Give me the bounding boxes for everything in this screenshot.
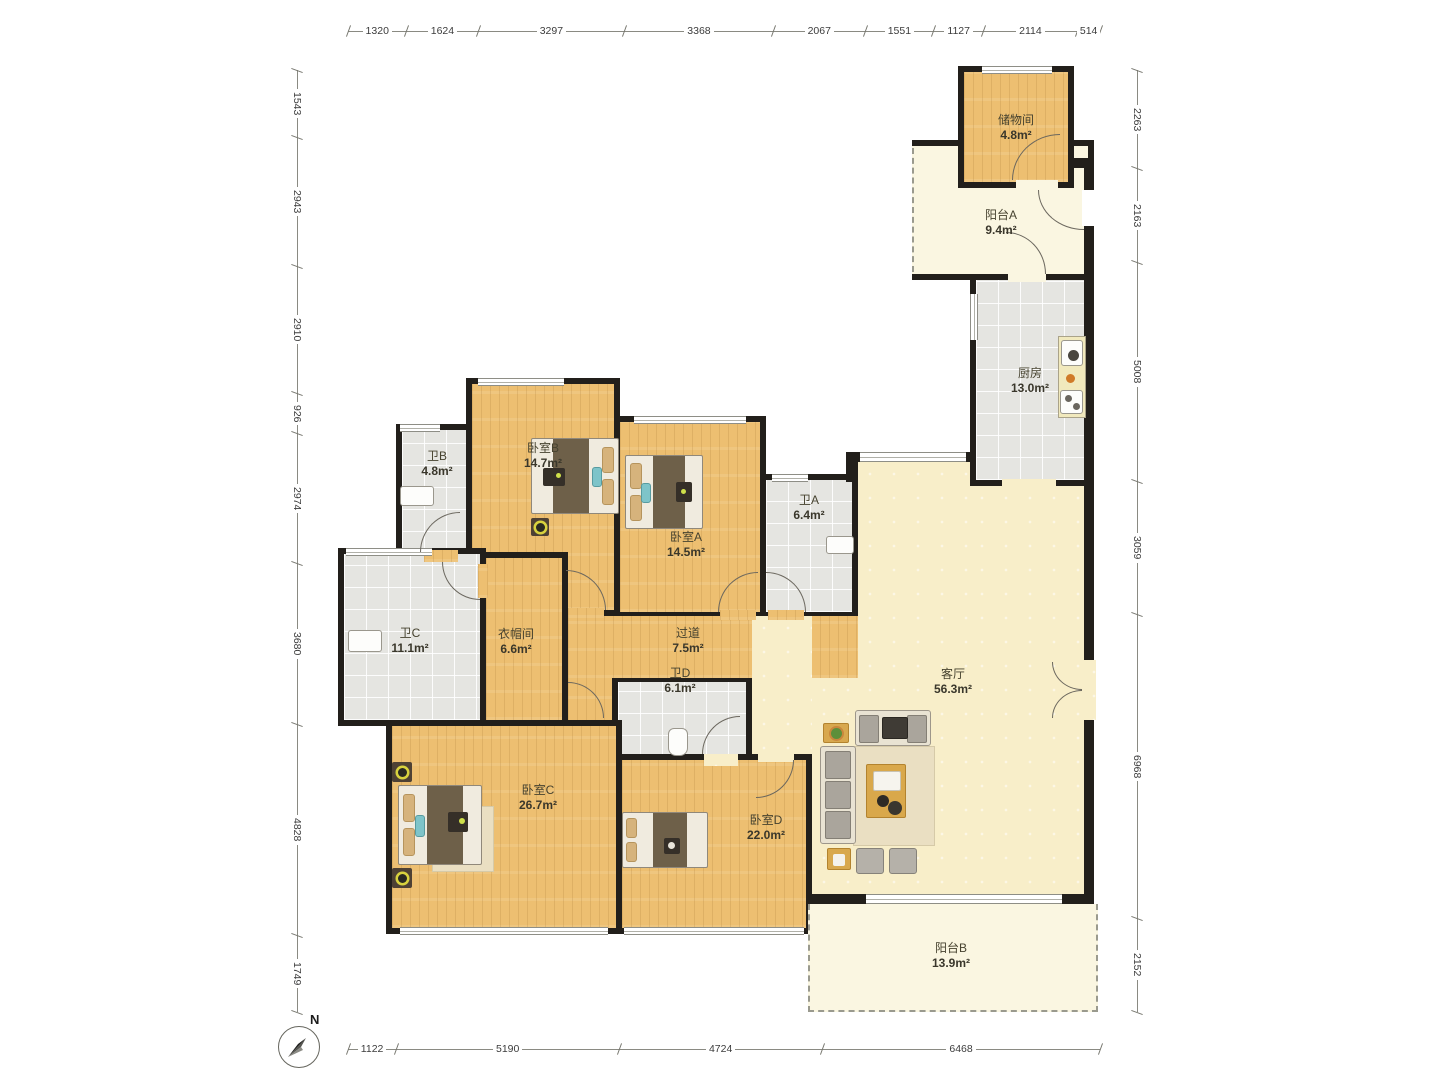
- room-name: 卫B: [421, 449, 452, 464]
- room-area: 9.4m²: [985, 223, 1017, 238]
- dimension-value: 2263: [1131, 105, 1143, 134]
- room-area: 6.4m²: [793, 508, 824, 523]
- plant-icon: [831, 728, 842, 739]
- dimension-segment: 2974: [288, 434, 306, 564]
- opening-entry-door: [1082, 190, 1096, 226]
- dimension-segment: 2943: [288, 137, 306, 266]
- bed-accent-pillow: [641, 483, 651, 503]
- sofa-dark-cushion: [882, 717, 908, 739]
- compass-needle-icon: [279, 1027, 319, 1067]
- room-name: 过道: [672, 626, 703, 641]
- kitchen-sink: [1061, 340, 1083, 366]
- room-name: 客厅: [934, 667, 972, 682]
- window-kitchen: [970, 294, 978, 340]
- dimension-value: 4724: [706, 1043, 735, 1055]
- ruler-top: 1320 1624 3297 3368 2067 1551 1127 2114 …: [348, 22, 1100, 40]
- sofa-cushion: [825, 781, 851, 809]
- sofa-long: [820, 746, 856, 844]
- room-label-balcony-a: 阳台A 9.4m²: [985, 208, 1017, 238]
- stove-dot: [1065, 395, 1072, 402]
- dimension-value: 1320: [363, 25, 392, 37]
- room-name: 卫D: [664, 666, 695, 681]
- sofa-cushion: [907, 715, 927, 743]
- opening-storage: [1016, 180, 1058, 190]
- dimension-value: 2943: [291, 187, 303, 216]
- room-label-bedroom-c: 卧室C 26.7m²: [519, 783, 557, 813]
- dimension-value: 3680: [291, 629, 303, 658]
- room-label-bath-a: 卫A 6.4m²: [793, 493, 824, 523]
- opening-bath-d: [704, 754, 738, 766]
- dimension-segment: 514: [1077, 22, 1100, 40]
- tray-icon: [873, 771, 901, 791]
- room-label-bedroom-a: 卧室A 14.5m²: [667, 530, 705, 560]
- bed-pillow: [403, 794, 415, 822]
- dimension-segment: 2114: [984, 22, 1078, 40]
- bed-throw-item: [676, 482, 692, 502]
- decor-dot: [668, 842, 675, 849]
- window-living-top: [860, 452, 966, 462]
- balcony-a-open-edge: [912, 148, 914, 272]
- room-label-bath-b: 卫B 4.8m²: [421, 449, 452, 479]
- burner-icon: [1066, 374, 1075, 383]
- teapot-icon: [888, 801, 902, 815]
- kitchen-stove: [1060, 390, 1083, 414]
- floor-plan-canvas: 储物间 4.8m² 阳台A 9.4m² 厨房 13.0m² 卫B 4.8m² 卧…: [0, 0, 1440, 1080]
- ruler-right: 2263 2163 5008 3059 6968 2152: [1128, 70, 1146, 1012]
- window-living-bottom: [866, 894, 1062, 904]
- dimension-segment: 1320: [348, 22, 406, 40]
- sofa-cushion: [825, 811, 851, 839]
- dimension-segment: 6468: [822, 1040, 1100, 1058]
- dimension-segment: 3059: [1128, 481, 1146, 614]
- dimension-value: 1543: [291, 89, 303, 118]
- room-label-bath-c: 卫C 11.1m²: [391, 626, 428, 656]
- dimension-segment: 3368: [624, 22, 773, 40]
- room-area: 11.1m²: [391, 641, 428, 656]
- wall-right-1: [1084, 158, 1094, 192]
- dimension-segment: 1624: [406, 22, 478, 40]
- dimension-value: 2974: [291, 484, 303, 513]
- dimension-segment: 4828: [288, 725, 306, 936]
- bed-pillow: [602, 447, 614, 473]
- dimension-value: 1624: [428, 25, 457, 37]
- nightstand: [392, 868, 412, 888]
- dimension-value: 514: [1077, 25, 1101, 37]
- dimension-segment: 1122: [348, 1040, 396, 1058]
- side-table: [823, 723, 849, 743]
- nightstand: [392, 762, 412, 782]
- opening-kitchen-living: [1002, 479, 1056, 488]
- coffee-table: [866, 764, 906, 818]
- dimension-value: 6468: [946, 1043, 975, 1055]
- dimension-value: 3297: [537, 25, 566, 37]
- window-bedroom-b: [478, 378, 564, 386]
- nightstand: [531, 518, 549, 536]
- dimension-segment: 1551: [865, 22, 934, 40]
- room-name: 衣帽间: [498, 627, 534, 642]
- bed-pillow: [626, 818, 637, 838]
- dimension-value: 5190: [493, 1043, 522, 1055]
- sofa-loveseat: [855, 710, 931, 746]
- room-name: 卫C: [391, 626, 428, 641]
- dimension-segment: 2910: [288, 266, 306, 393]
- room-label-bedroom-d: 卧室D 22.0m²: [747, 813, 785, 843]
- dimension-segment: 4724: [619, 1040, 822, 1058]
- dimension-value: 5008: [1131, 357, 1143, 386]
- window-bedroom-d: [624, 927, 804, 935]
- room-label-bath-d: 卫D 6.1m²: [664, 666, 695, 696]
- room-name: 卧室D: [747, 813, 785, 828]
- ottoman: [889, 848, 917, 874]
- bed-throw-item: [448, 812, 468, 832]
- dimension-value: 1749: [291, 959, 303, 988]
- room-label-cloakroom: 衣帽间 6.6m²: [498, 627, 534, 657]
- dimension-segment: 1749: [288, 936, 306, 1012]
- wall-right-3: [1084, 718, 1094, 904]
- room-area: 22.0m²: [747, 828, 785, 843]
- room-floor-hallway: [568, 616, 858, 678]
- dimension-segment: 6968: [1128, 615, 1146, 919]
- dimension-segment: 2263: [1128, 70, 1146, 169]
- dimension-segment: 5190: [396, 1040, 619, 1058]
- kettle-icon: [877, 795, 889, 807]
- room-area: 13.9m²: [932, 956, 970, 971]
- dimension-value: 2067: [805, 25, 834, 37]
- room-area: 56.3m²: [934, 682, 972, 697]
- decor-dot: [459, 818, 465, 824]
- sofa-cushion: [825, 751, 851, 779]
- bath-c-tub: [348, 630, 382, 652]
- window-bath-a: [772, 474, 808, 482]
- dimension-value: 1551: [885, 25, 914, 37]
- dimension-segment: 2152: [1128, 918, 1146, 1012]
- bed-pillow: [602, 479, 614, 505]
- dimension-value: 1122: [358, 1043, 387, 1055]
- stove-dot: [1073, 403, 1080, 410]
- room-label-bedroom-b: 卧室B 14.7m²: [524, 441, 562, 471]
- room-label-balcony-b: 阳台B 13.9m²: [932, 941, 970, 971]
- wall-right-2: [1084, 224, 1094, 662]
- dimension-segment: 3297: [478, 22, 624, 40]
- sink-basin-icon: [1068, 350, 1079, 361]
- window-storage: [982, 66, 1052, 74]
- bed-bedroom-c: [398, 785, 482, 865]
- dimension-value: 3059: [1131, 533, 1143, 562]
- bed-accent-pillow: [592, 467, 602, 487]
- bed-pillow: [626, 842, 637, 862]
- bed-accent-pillow: [415, 815, 425, 837]
- compass-icon: [278, 1026, 320, 1068]
- ottoman: [856, 848, 884, 874]
- room-label-kitchen: 厨房 13.0m²: [1011, 366, 1049, 396]
- bath-d-toilet: [668, 728, 688, 756]
- room-area: 4.8m²: [421, 464, 452, 479]
- dimension-segment: 2067: [774, 22, 866, 40]
- ruler-bottom: 1122 5190 4724 6468: [348, 1040, 1100, 1058]
- dimension-value: 926: [291, 402, 303, 426]
- decor-dot: [556, 473, 561, 478]
- room-label-living: 客厅 56.3m²: [934, 667, 972, 697]
- book-icon: [833, 854, 845, 866]
- room-name: 卧室B: [524, 441, 562, 456]
- room-name: 阳台B: [932, 941, 970, 956]
- dimension-segment: 926: [288, 393, 306, 433]
- room-label-storage: 储物间 4.8m²: [998, 113, 1034, 143]
- wall-living-top-stub: [846, 452, 858, 482]
- side-table: [827, 848, 851, 870]
- room-name: 阳台A: [985, 208, 1017, 223]
- dimension-value: 2910: [291, 315, 303, 344]
- sofa-cushion: [859, 715, 879, 743]
- room-area: 26.7m²: [519, 798, 557, 813]
- bed-pillow: [403, 828, 415, 856]
- dimension-value: 2114: [1016, 25, 1045, 37]
- dimension-value: 6968: [1131, 752, 1143, 781]
- window-bedroom-a: [634, 416, 746, 424]
- ruler-left: 1543 2943 2910 926 2974 3680 4828 1749: [288, 70, 306, 1012]
- bath-b-sink: [400, 486, 434, 506]
- room-name: 卧室A: [667, 530, 705, 545]
- dimension-value: 1127: [944, 25, 973, 37]
- room-area: 14.5m²: [667, 545, 705, 560]
- room-area: 7.5m²: [672, 641, 703, 656]
- room-floor-living-connector: [752, 616, 812, 754]
- room-area: 13.0m²: [1011, 381, 1049, 396]
- dimension-segment: 1543: [288, 70, 306, 137]
- room-area: 6.1m²: [664, 681, 695, 696]
- dimension-segment: 2163: [1128, 169, 1146, 263]
- dimension-value: 2163: [1131, 201, 1143, 230]
- room-floor-living-right: [970, 486, 1084, 894]
- decor-dot: [681, 489, 686, 494]
- room-name: 储物间: [998, 113, 1034, 128]
- dimension-value: 3368: [684, 25, 713, 37]
- room-area: 4.8m²: [998, 128, 1034, 143]
- window-bedroom-c: [400, 927, 608, 935]
- bed-throw-item: [664, 838, 680, 854]
- bath-a-sink: [826, 536, 854, 554]
- opening-french-door: [1082, 660, 1096, 720]
- north-label: N: [310, 1012, 319, 1027]
- dimension-segment: 3680: [288, 564, 306, 725]
- room-name: 卧室C: [519, 783, 557, 798]
- room-label-hallway: 过道 7.5m²: [672, 626, 703, 656]
- dimension-value: 4828: [291, 815, 303, 844]
- dimension-value: 2152: [1131, 950, 1143, 979]
- room-area: 14.7m²: [524, 456, 562, 471]
- dimension-segment: 1127: [934, 22, 984, 40]
- dimension-segment: 5008: [1128, 263, 1146, 481]
- room-area: 6.6m²: [498, 642, 534, 657]
- window-bath-b: [400, 424, 440, 432]
- room-name: 厨房: [1011, 366, 1049, 381]
- room-name: 卫A: [793, 493, 824, 508]
